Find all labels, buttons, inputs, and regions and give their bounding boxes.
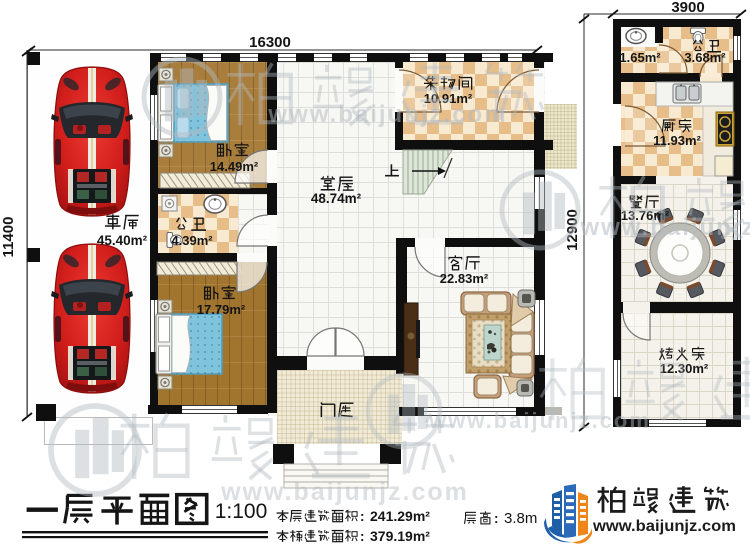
svg-text:11400: 11400 — [0, 217, 17, 258]
svg-text:45.40m²: 45.40m² — [97, 233, 148, 248]
svg-text:17.79m²: 17.79m² — [197, 302, 246, 317]
svg-text:www.baijunjz.com: www.baijunjz.com — [267, 101, 507, 128]
svg-text:www.baijunjz.com: www.baijunjz.com — [592, 518, 736, 535]
svg-text:1.65m²: 1.65m² — [619, 50, 661, 65]
svg-text::: : — [494, 511, 499, 526]
svg-text:3.68m²: 3.68m² — [684, 50, 726, 65]
svg-text:www.baijunjz.com: www.baijunjz.com — [428, 408, 651, 433]
svg-text:22.83m²: 22.83m² — [440, 271, 489, 286]
svg-text:241.29m²: 241.29m² — [370, 508, 430, 524]
svg-text:379.19m²: 379.19m² — [370, 528, 430, 544]
svg-text:3900: 3900 — [671, 0, 704, 16]
svg-text::: : — [360, 529, 365, 544]
svg-text:3.8m: 3.8m — [504, 510, 537, 527]
svg-text:www.baijunjz.com: www.baijunjz.com — [220, 478, 469, 506]
svg-text::: : — [360, 509, 365, 524]
svg-text:14.49m²: 14.49m² — [210, 159, 259, 174]
svg-text:11.93m²: 11.93m² — [653, 133, 701, 148]
svg-text:www.baijunjz.com: www.baijunjz.com — [579, 214, 750, 241]
svg-text:48.74m²: 48.74m² — [311, 191, 362, 206]
svg-text:16300: 16300 — [249, 34, 291, 51]
svg-text:4.39m²: 4.39m² — [171, 233, 213, 248]
